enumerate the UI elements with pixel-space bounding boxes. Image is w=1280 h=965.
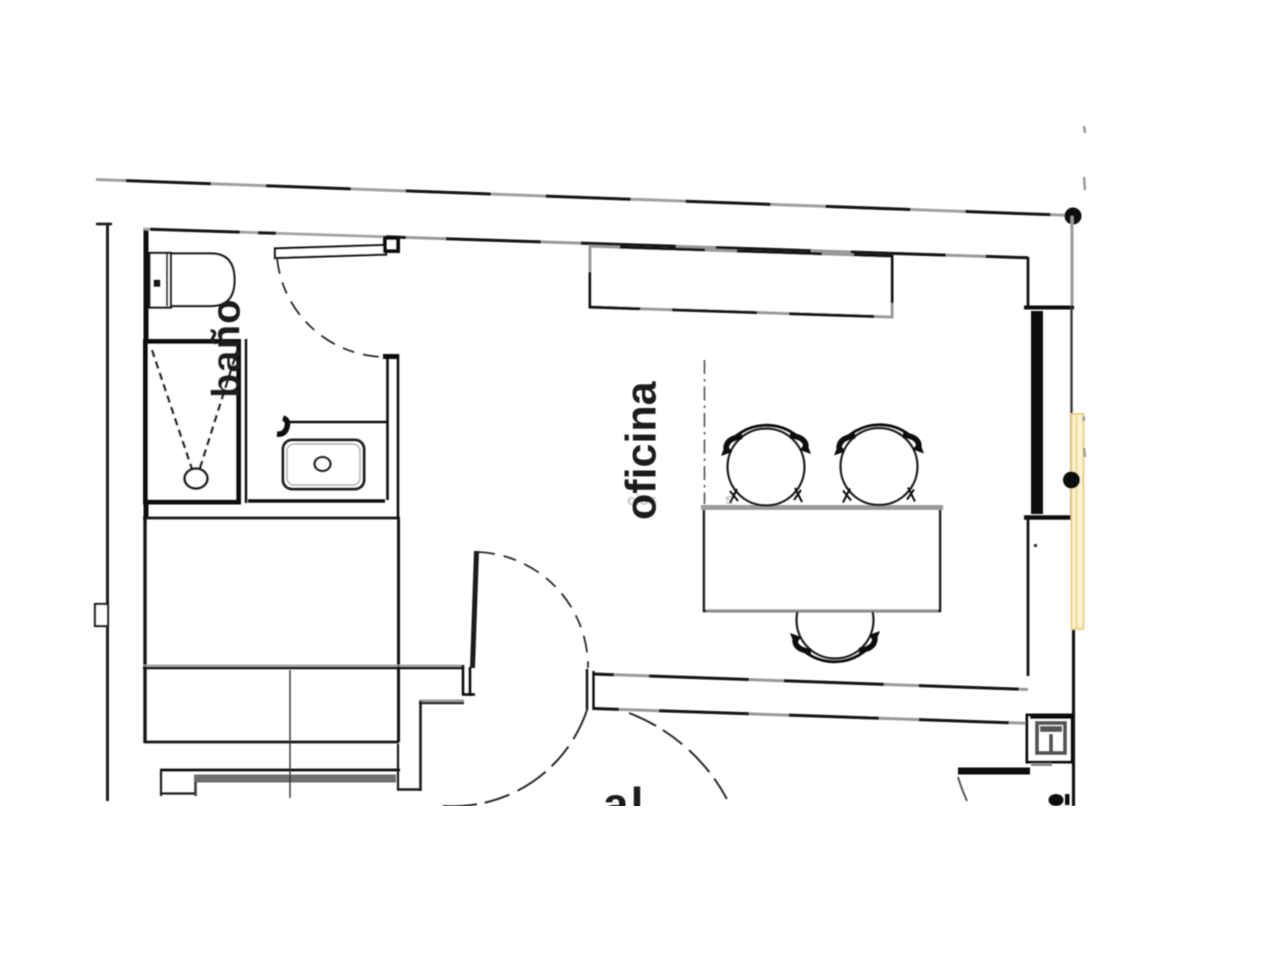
svg-text:oficina: oficina — [618, 380, 666, 520]
svg-text:baño: baño — [205, 298, 249, 398]
